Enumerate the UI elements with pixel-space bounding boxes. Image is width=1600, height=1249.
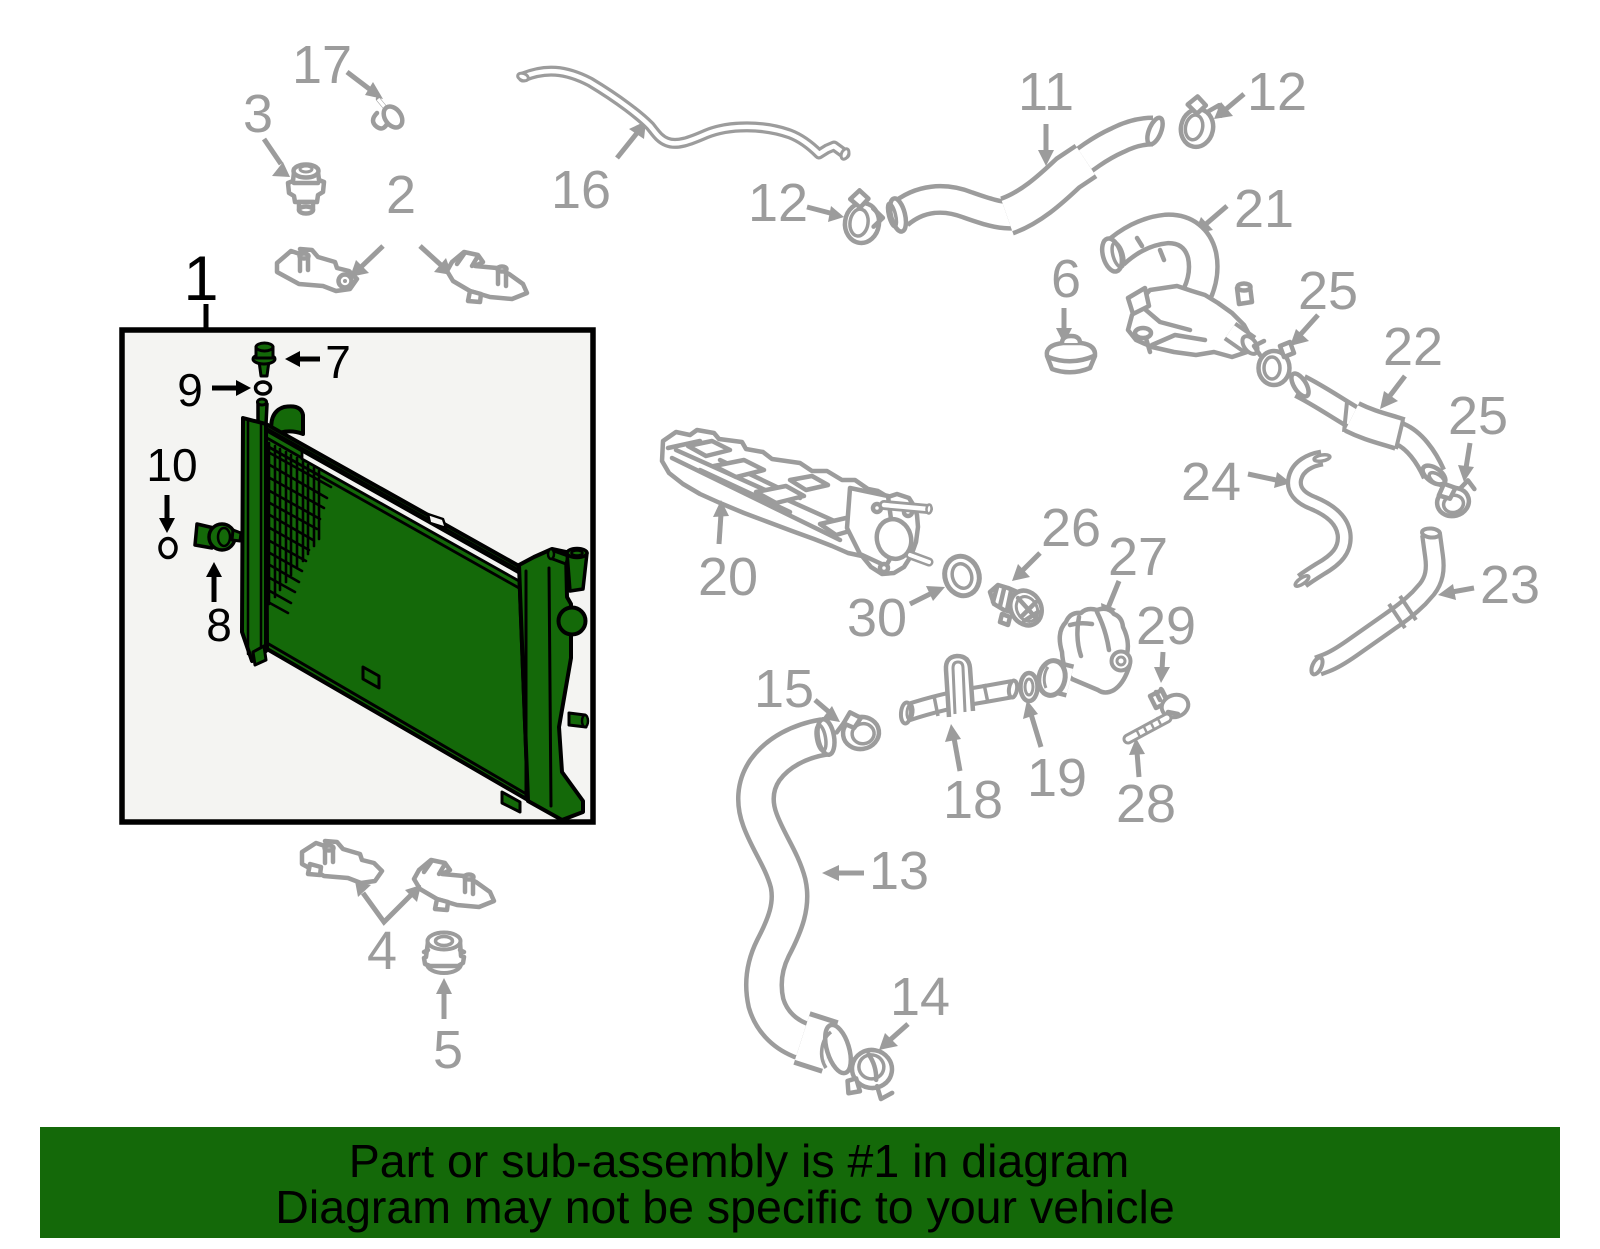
svg-text:2: 2 [386,165,416,225]
svg-text:20: 20 [698,547,758,607]
svg-text:24: 24 [1181,452,1241,512]
svg-text:15: 15 [754,659,814,719]
svg-text:11: 11 [1018,62,1074,122]
svg-text:13: 13 [869,841,929,901]
svg-text:12: 12 [748,173,808,233]
svg-text:29: 29 [1136,596,1196,656]
svg-text:19: 19 [1027,748,1087,808]
svg-text:12: 12 [1247,62,1307,122]
svg-text:14: 14 [890,967,950,1027]
svg-text:27: 27 [1108,527,1168,587]
svg-text:7: 7 [325,336,351,388]
svg-text:21: 21 [1234,179,1294,239]
svg-text:10: 10 [146,439,197,491]
svg-text:26: 26 [1041,498,1101,558]
svg-text:9: 9 [177,364,203,416]
svg-text:3: 3 [243,84,273,144]
svg-text:Diagram may not be specific to: Diagram may not be specific to your vehi… [275,1181,1174,1233]
svg-text:4: 4 [367,921,397,981]
svg-text:1: 1 [183,244,218,314]
svg-text:25: 25 [1448,386,1508,446]
svg-text:17: 17 [292,35,352,95]
svg-text:30: 30 [847,588,907,648]
svg-text:8: 8 [206,599,232,651]
svg-text:Part or sub-assembly is #1 in: Part or sub-assembly is #1 in diagram [349,1135,1130,1187]
svg-text:28: 28 [1116,774,1176,834]
svg-text:23: 23 [1480,555,1540,615]
svg-text:18: 18 [943,770,1003,830]
svg-text:6: 6 [1051,249,1081,309]
svg-text:22: 22 [1383,317,1443,377]
svg-text:25: 25 [1298,261,1358,321]
svg-text:5: 5 [433,1020,463,1080]
svg-text:16: 16 [551,160,611,220]
